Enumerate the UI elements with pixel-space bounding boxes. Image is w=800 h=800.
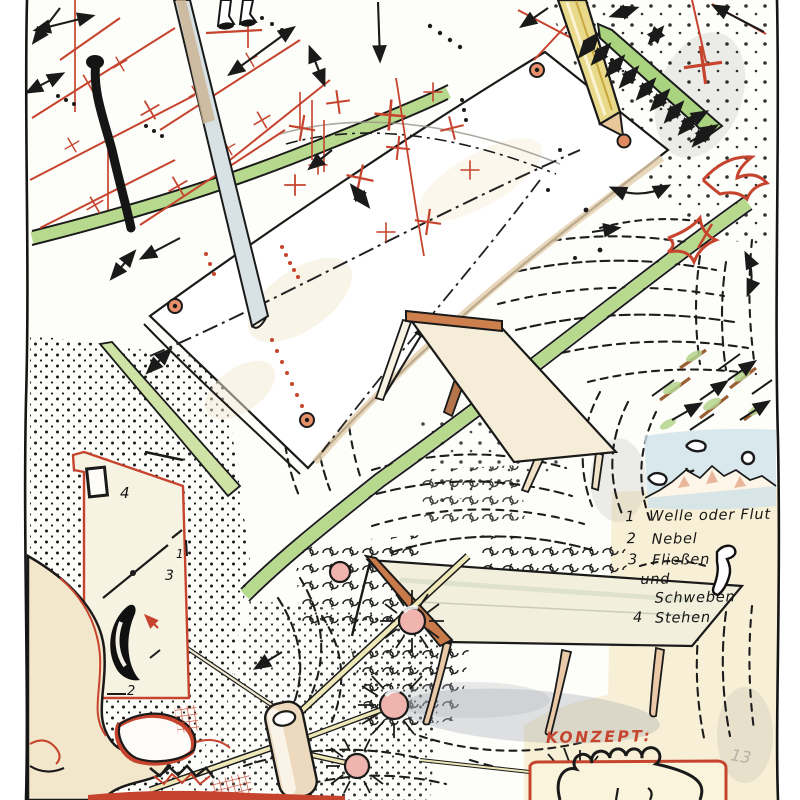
pencil-signature: 13 xyxy=(729,745,752,767)
legend-item-3-num: 3 xyxy=(628,552,638,568)
plan-marker-1: 1 xyxy=(176,547,184,561)
legend-item-2-num: 2 xyxy=(626,531,636,547)
concept-sketch-canvas: 4 3 1 2 1 xyxy=(0,0,800,800)
legend-item-4-num: 4 xyxy=(633,610,643,626)
legend-item-1-num: 1 xyxy=(625,509,635,525)
sketch-page: 4 3 1 2 1 xyxy=(0,0,800,800)
plan-marker-4: 4 xyxy=(120,484,130,502)
plan-marker-3: 3 xyxy=(165,568,174,584)
legend-item-3-label: Fließen xyxy=(652,552,710,569)
legend-item-4-label: Stehen xyxy=(655,610,711,627)
legend-item-2-label: Nebel xyxy=(652,531,698,548)
legend-item-3c-label: Schweben xyxy=(655,589,736,606)
plan-marker-2: 2 xyxy=(127,684,135,699)
konzept-label: KONZEPT: xyxy=(546,727,653,747)
legend-item-3b-label: und xyxy=(640,572,670,589)
legend-item-1-label: Welle oder Flut xyxy=(649,507,771,525)
left-border-line xyxy=(25,0,27,800)
